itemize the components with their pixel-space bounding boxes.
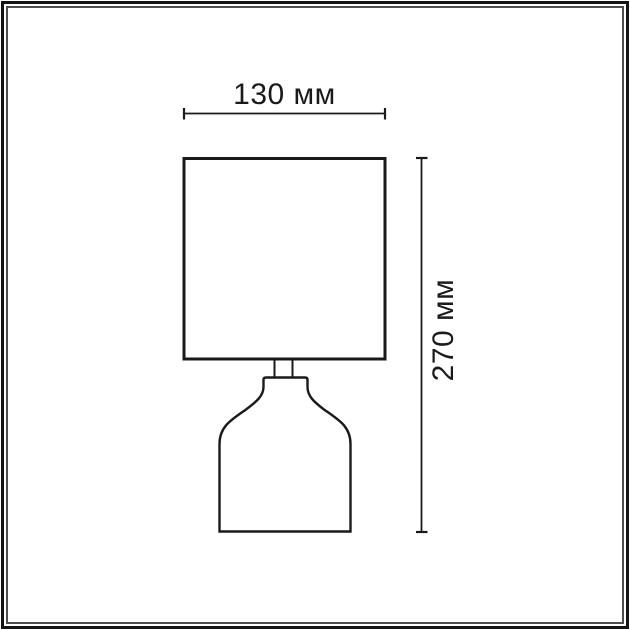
product-dimension-diagram: 130 мм 270 мм <box>0 0 630 630</box>
height-dimension-line <box>416 158 428 532</box>
lamp-base-outline <box>220 378 351 532</box>
lamp-shade-outline <box>184 159 385 360</box>
height-dimension-label: 270 мм <box>429 230 459 430</box>
lamp-neck-outline <box>275 360 293 378</box>
width-dimension-label: 130 мм <box>184 80 385 110</box>
